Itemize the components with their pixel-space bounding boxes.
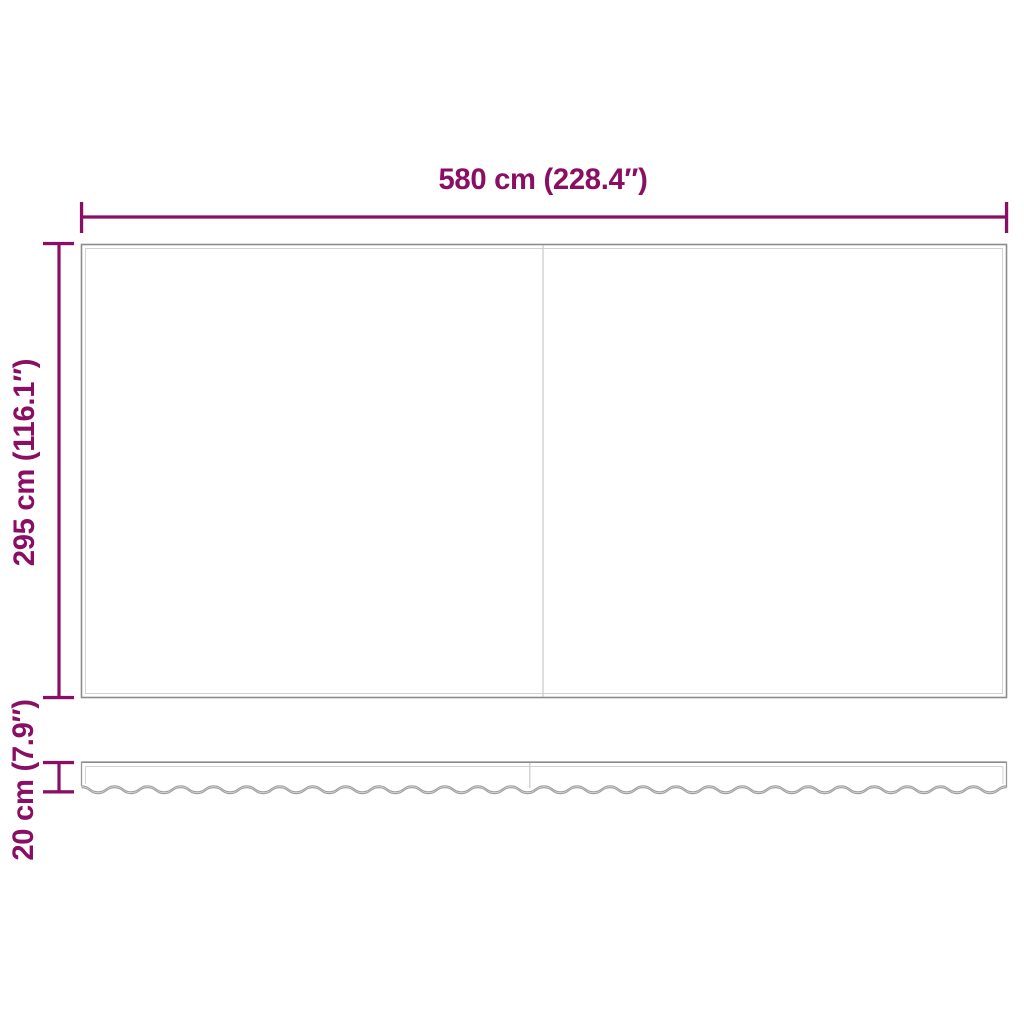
svg-text:20 cm (7.9″): 20 cm (7.9″) [8,699,40,860]
svg-text:295 cm (116.1″): 295 cm (116.1″) [9,359,41,566]
svg-text:580 cm (228.4″): 580 cm (228.4″) [438,164,647,196]
